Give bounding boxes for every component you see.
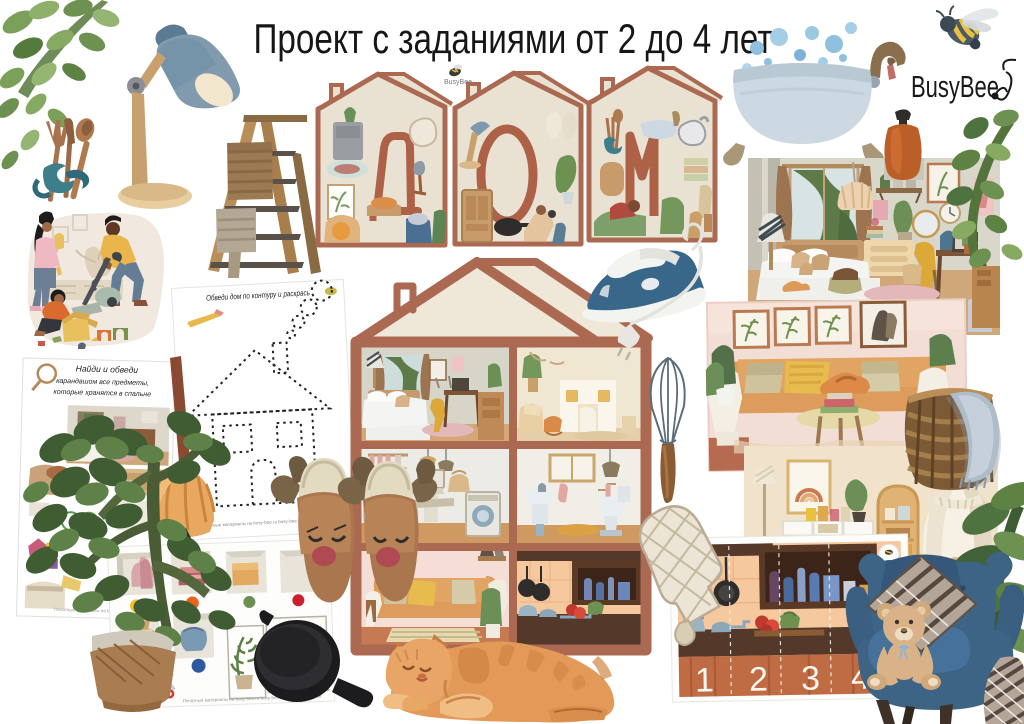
svg-text:1: 1	[695, 661, 715, 699]
svg-text:Найди и обведи: Найди и обведи	[76, 363, 139, 375]
svg-text:BusyBee: BusyBee	[911, 69, 999, 104]
svg-text:2: 2	[749, 660, 769, 698]
svg-text:Проект с заданиями от 2 до 4 л: Проект с заданиями от 2 до 4 лет	[254, 15, 773, 62]
svg-text:3: 3	[801, 659, 821, 697]
svg-text:BusyBee: BusyBee	[444, 79, 472, 86]
